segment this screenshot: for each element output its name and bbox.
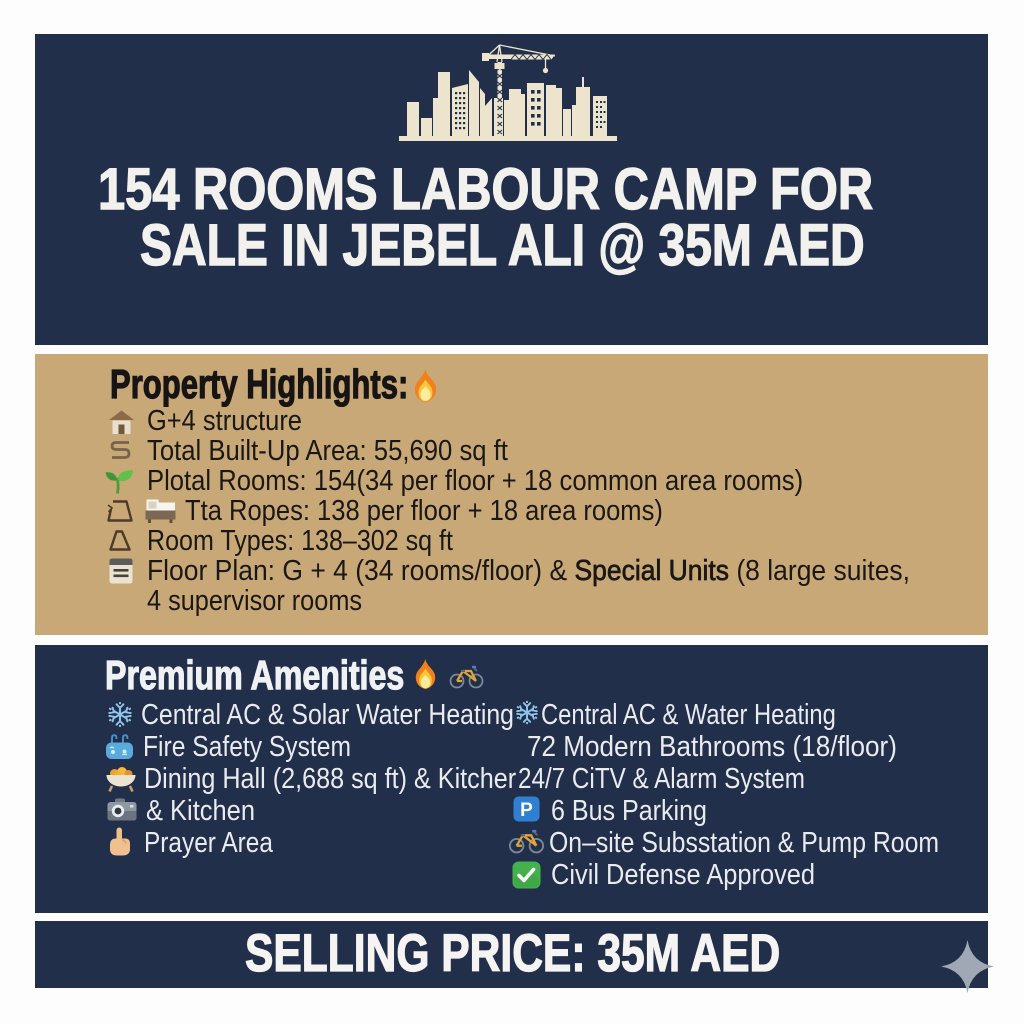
svg-text:P: P <box>520 800 533 821</box>
